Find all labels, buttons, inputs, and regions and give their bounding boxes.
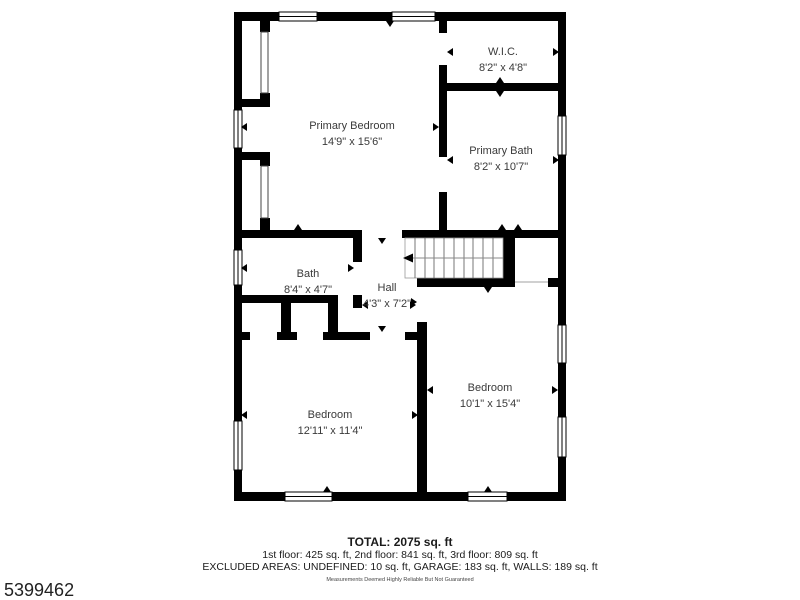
wall-segment xyxy=(503,238,515,278)
window xyxy=(234,110,242,148)
closet-wall xyxy=(260,218,270,232)
tick-icon xyxy=(348,264,354,272)
tick-icon xyxy=(496,91,504,97)
room-dimensions: 8'4" x 4'7" xyxy=(284,283,332,299)
wall-segment xyxy=(277,332,297,340)
tick-icon xyxy=(294,224,302,230)
closet-wall xyxy=(260,152,270,166)
wall-segment xyxy=(558,457,566,501)
closet-wall xyxy=(328,303,338,332)
closet-wall xyxy=(260,93,270,107)
room-label-wic: W.I.C. 8'2" x 4'8" xyxy=(479,45,527,77)
tick-icon xyxy=(514,224,522,230)
tick-icon xyxy=(484,287,492,293)
tick-icon xyxy=(427,386,433,394)
floor-areas-text: 1st floor: 425 sq. ft, 2nd floor: 841 sq… xyxy=(0,549,800,561)
room-name: Bedroom xyxy=(298,408,363,424)
wall-segment xyxy=(234,12,242,110)
measurement-disclaimer-text: Measurements Deemed Highly Reliable But … xyxy=(0,577,800,583)
closet-door xyxy=(261,32,268,93)
tick-icon xyxy=(433,123,439,131)
listing-id: 5399462 xyxy=(4,580,74,600)
tick-icon xyxy=(378,238,386,244)
room-label-bath: Bath 8'4" x 4'7" xyxy=(284,267,332,299)
wall-segment xyxy=(323,332,370,340)
wall-segment xyxy=(507,492,566,501)
closet-wall xyxy=(242,99,260,107)
room-label-bedroom-left: Bedroom 12'11" x 11'4" xyxy=(298,408,363,440)
wall-segment xyxy=(439,65,447,157)
tick-icon xyxy=(447,48,453,56)
wall-segment xyxy=(353,238,362,262)
stairs xyxy=(403,238,548,282)
wall-segment xyxy=(548,278,558,287)
window xyxy=(234,250,242,285)
tick-icon xyxy=(447,156,453,164)
window xyxy=(558,116,566,155)
wall-segment xyxy=(435,12,566,21)
closet-doors xyxy=(261,32,268,218)
wall-segment xyxy=(558,12,566,116)
window xyxy=(558,417,566,457)
room-dimensions: 14'9" x 15'6" xyxy=(309,135,395,151)
wall-segment xyxy=(417,278,515,287)
tick-icon xyxy=(552,386,558,394)
wall-segment xyxy=(417,322,427,492)
tick-icon xyxy=(484,486,492,492)
room-name: Bath xyxy=(284,267,332,283)
room-name: W.I.C. xyxy=(479,45,527,61)
tick-icon xyxy=(323,486,331,492)
room-label-bedroom-right: Bedroom 10'1" x 15'4" xyxy=(460,381,520,413)
window xyxy=(392,12,435,21)
floor-plan-page: Primary Bedroom 14'9" x 15'6" W.I.C. 8'2… xyxy=(0,0,800,600)
wall-segment xyxy=(439,192,447,232)
wall-segment xyxy=(353,295,362,308)
wall-segment xyxy=(317,12,392,21)
tick-icon xyxy=(386,21,394,27)
excluded-areas-text: EXCLUDED AREAS: UNDEFINED: 10 sq. ft, GA… xyxy=(0,561,800,573)
room-dimensions: 8'2" x 4'8" xyxy=(479,61,527,77)
window xyxy=(468,492,507,501)
tick-icon xyxy=(378,326,386,332)
room-name: Primary Bedroom xyxy=(309,119,395,135)
wall-segment xyxy=(234,470,242,501)
wall-segment xyxy=(447,83,558,91)
wall-segment xyxy=(242,332,250,340)
wall-segment xyxy=(234,148,242,250)
room-name: Primary Bath xyxy=(469,144,533,160)
wall-segment xyxy=(558,155,566,325)
room-label-hall: Hall 4'3" x 7'2" xyxy=(363,281,411,313)
room-label-primary-bath: Primary Bath 8'2" x 10'7" xyxy=(469,144,533,176)
wall-segment xyxy=(332,492,468,501)
tick-icon xyxy=(496,77,504,83)
window xyxy=(558,325,566,363)
closet-door xyxy=(261,166,268,218)
room-dimensions: 4'3" x 7'2" xyxy=(363,297,411,313)
wall-segment xyxy=(402,230,558,238)
wall-segment xyxy=(439,21,447,33)
wall-segment xyxy=(558,363,566,417)
room-name: Hall xyxy=(363,281,411,297)
tick-icon xyxy=(498,224,506,230)
room-label-primary-bedroom: Primary Bedroom 14'9" x 15'6" xyxy=(309,119,395,151)
total-area-text: TOTAL: 2075 sq. ft xyxy=(0,535,800,549)
interior-walls xyxy=(242,21,558,492)
window xyxy=(285,492,332,501)
window xyxy=(279,12,317,21)
room-dimensions: 12'11" x 11'4" xyxy=(298,424,363,440)
room-dimensions: 8'2" x 10'7" xyxy=(469,160,533,176)
room-dimensions: 10'1" x 15'4" xyxy=(460,397,520,413)
room-name: Bedroom xyxy=(460,381,520,397)
closet-wall xyxy=(260,21,270,32)
window xyxy=(234,421,242,470)
wall-segment xyxy=(234,285,242,421)
closet-wall xyxy=(281,303,291,332)
